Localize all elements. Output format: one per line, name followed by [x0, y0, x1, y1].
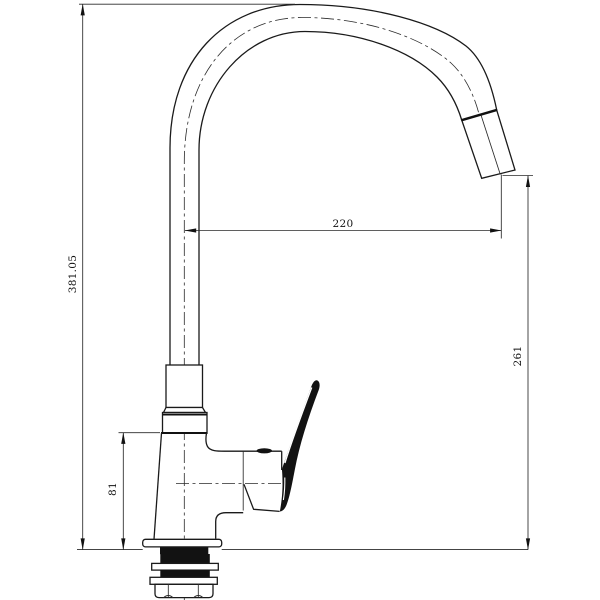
collar-lower: [163, 413, 208, 434]
dimension-label: 220: [333, 218, 354, 230]
dimension-label: 381.05: [67, 255, 79, 294]
gasket: [160, 547, 208, 555]
cartridge-cap-detail: [257, 448, 273, 453]
collar-upper: [166, 365, 203, 408]
deck-flange: [143, 539, 222, 547]
paper-background: [0, 0, 600, 600]
lock-washer-upper: [152, 563, 219, 570]
mounting-nut: [155, 584, 213, 597]
lock-washer-lower: [150, 577, 217, 584]
drawing-canvas: 381.05 220 261 81: [0, 0, 600, 600]
mounting-collar: [161, 365, 208, 433]
dimension-label: 261: [512, 346, 524, 367]
faucet-technical-drawing: 381.05 220 261 81: [0, 0, 600, 600]
collar-chamfer-ring: [164, 408, 206, 413]
dimension-label: 81: [107, 482, 119, 496]
threaded-shank-upper: [160, 554, 210, 564]
threaded-shank-lower: [160, 570, 210, 577]
